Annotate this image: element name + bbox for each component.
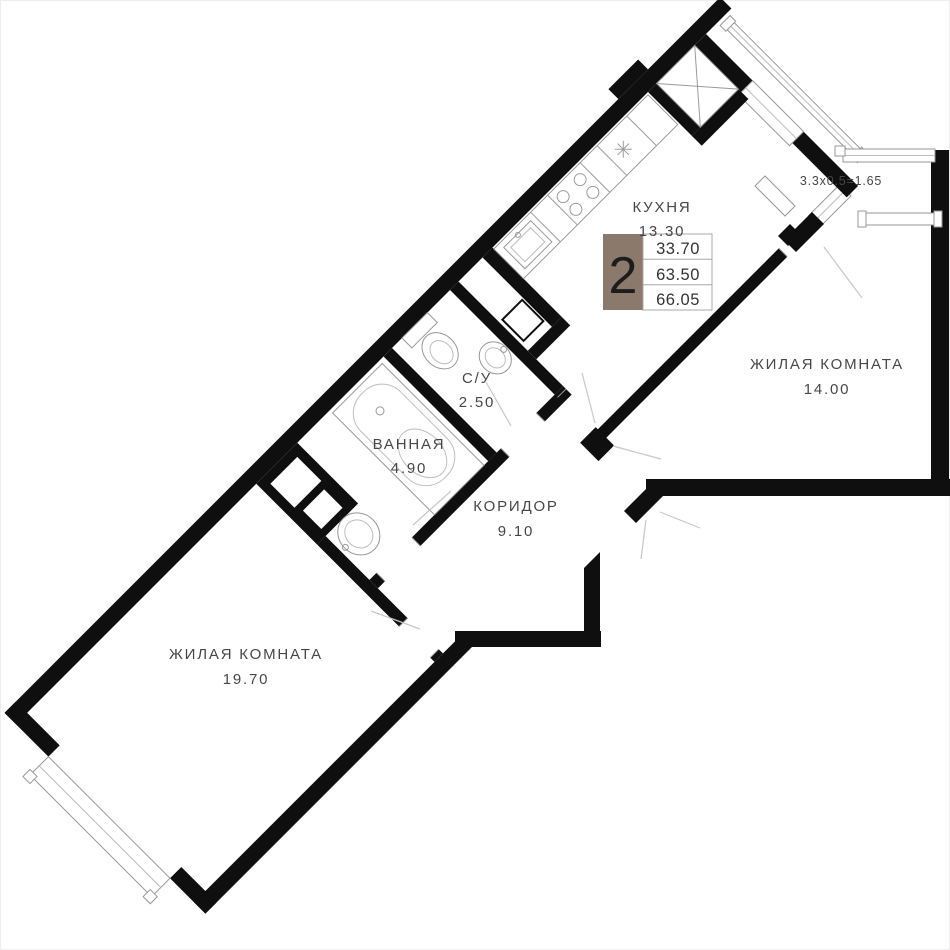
su-area: 2.50 <box>459 394 495 411</box>
living14-area: 14.00 <box>804 381 851 398</box>
balcony-side-window <box>755 176 795 216</box>
living14-walls <box>646 150 950 496</box>
living14-window <box>858 211 942 227</box>
corridor-walls <box>455 552 601 647</box>
area-without-balcony-value: 63.50 <box>656 266 700 284</box>
rotated-wing <box>0 0 921 936</box>
su-label: С/У <box>462 370 492 387</box>
living19-label: ЖИЛАЯ КОМНАТА <box>169 646 323 663</box>
floorplan-canvas: 2 33.70 63.50 66.05 КУХНЯ 13.30 ЖИЛАЯ КО… <box>0 0 950 950</box>
total-area-value: 66.05 <box>656 291 700 309</box>
kitchen-area: 13.30 <box>639 223 686 240</box>
living19-window <box>23 754 173 904</box>
bathroom-area: 4.90 <box>391 460 427 477</box>
bathroom-label: ВАННАЯ <box>373 436 446 453</box>
living-area-value: 33.70 <box>656 240 700 258</box>
corridor-label: КОРИДОР <box>473 498 558 515</box>
living19-area: 19.70 <box>223 671 270 688</box>
rooms-count: 2 <box>609 247 638 305</box>
balcony-area-note: 3.3x0.5=1.65 <box>800 174 882 188</box>
floorplan-svg: 2 33.70 63.50 66.05 КУХНЯ 13.30 ЖИЛАЯ КО… <box>0 0 950 950</box>
living14-label: ЖИЛАЯ КОМНАТА <box>750 356 904 373</box>
legend: 2 33.70 63.50 66.05 <box>603 234 712 310</box>
corridor-area: 9.10 <box>498 523 534 540</box>
kitchen-label: КУХНЯ <box>632 199 691 216</box>
